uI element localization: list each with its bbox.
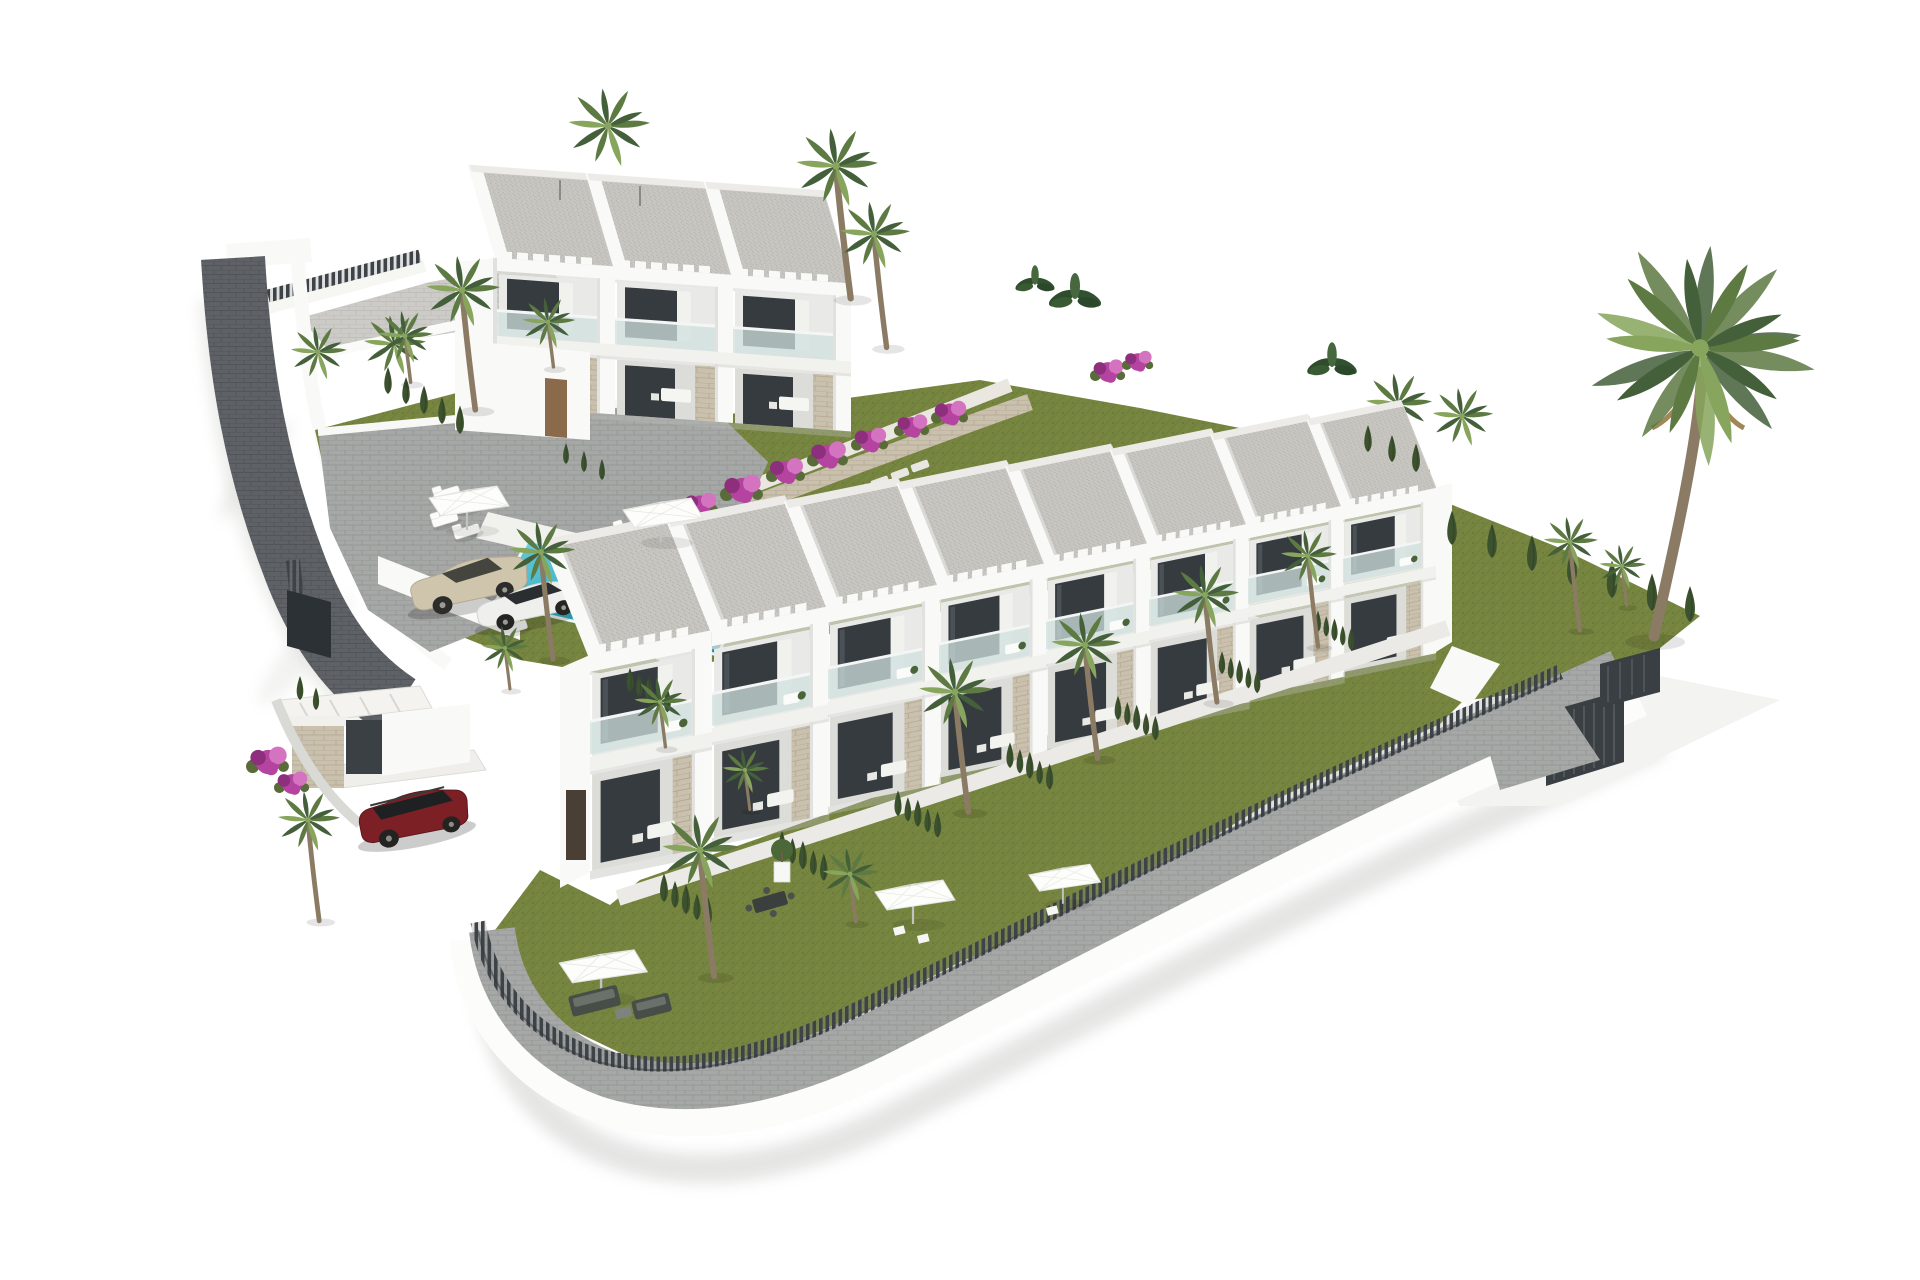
rear-building-block <box>455 165 852 440</box>
left-gable-door <box>566 790 586 860</box>
site-plan-svg <box>0 0 1920 1280</box>
entrance-opening <box>346 720 382 774</box>
architectural-render <box>0 0 1920 1280</box>
development-sign <box>287 590 331 658</box>
rear-block-entrance-door <box>545 378 567 438</box>
